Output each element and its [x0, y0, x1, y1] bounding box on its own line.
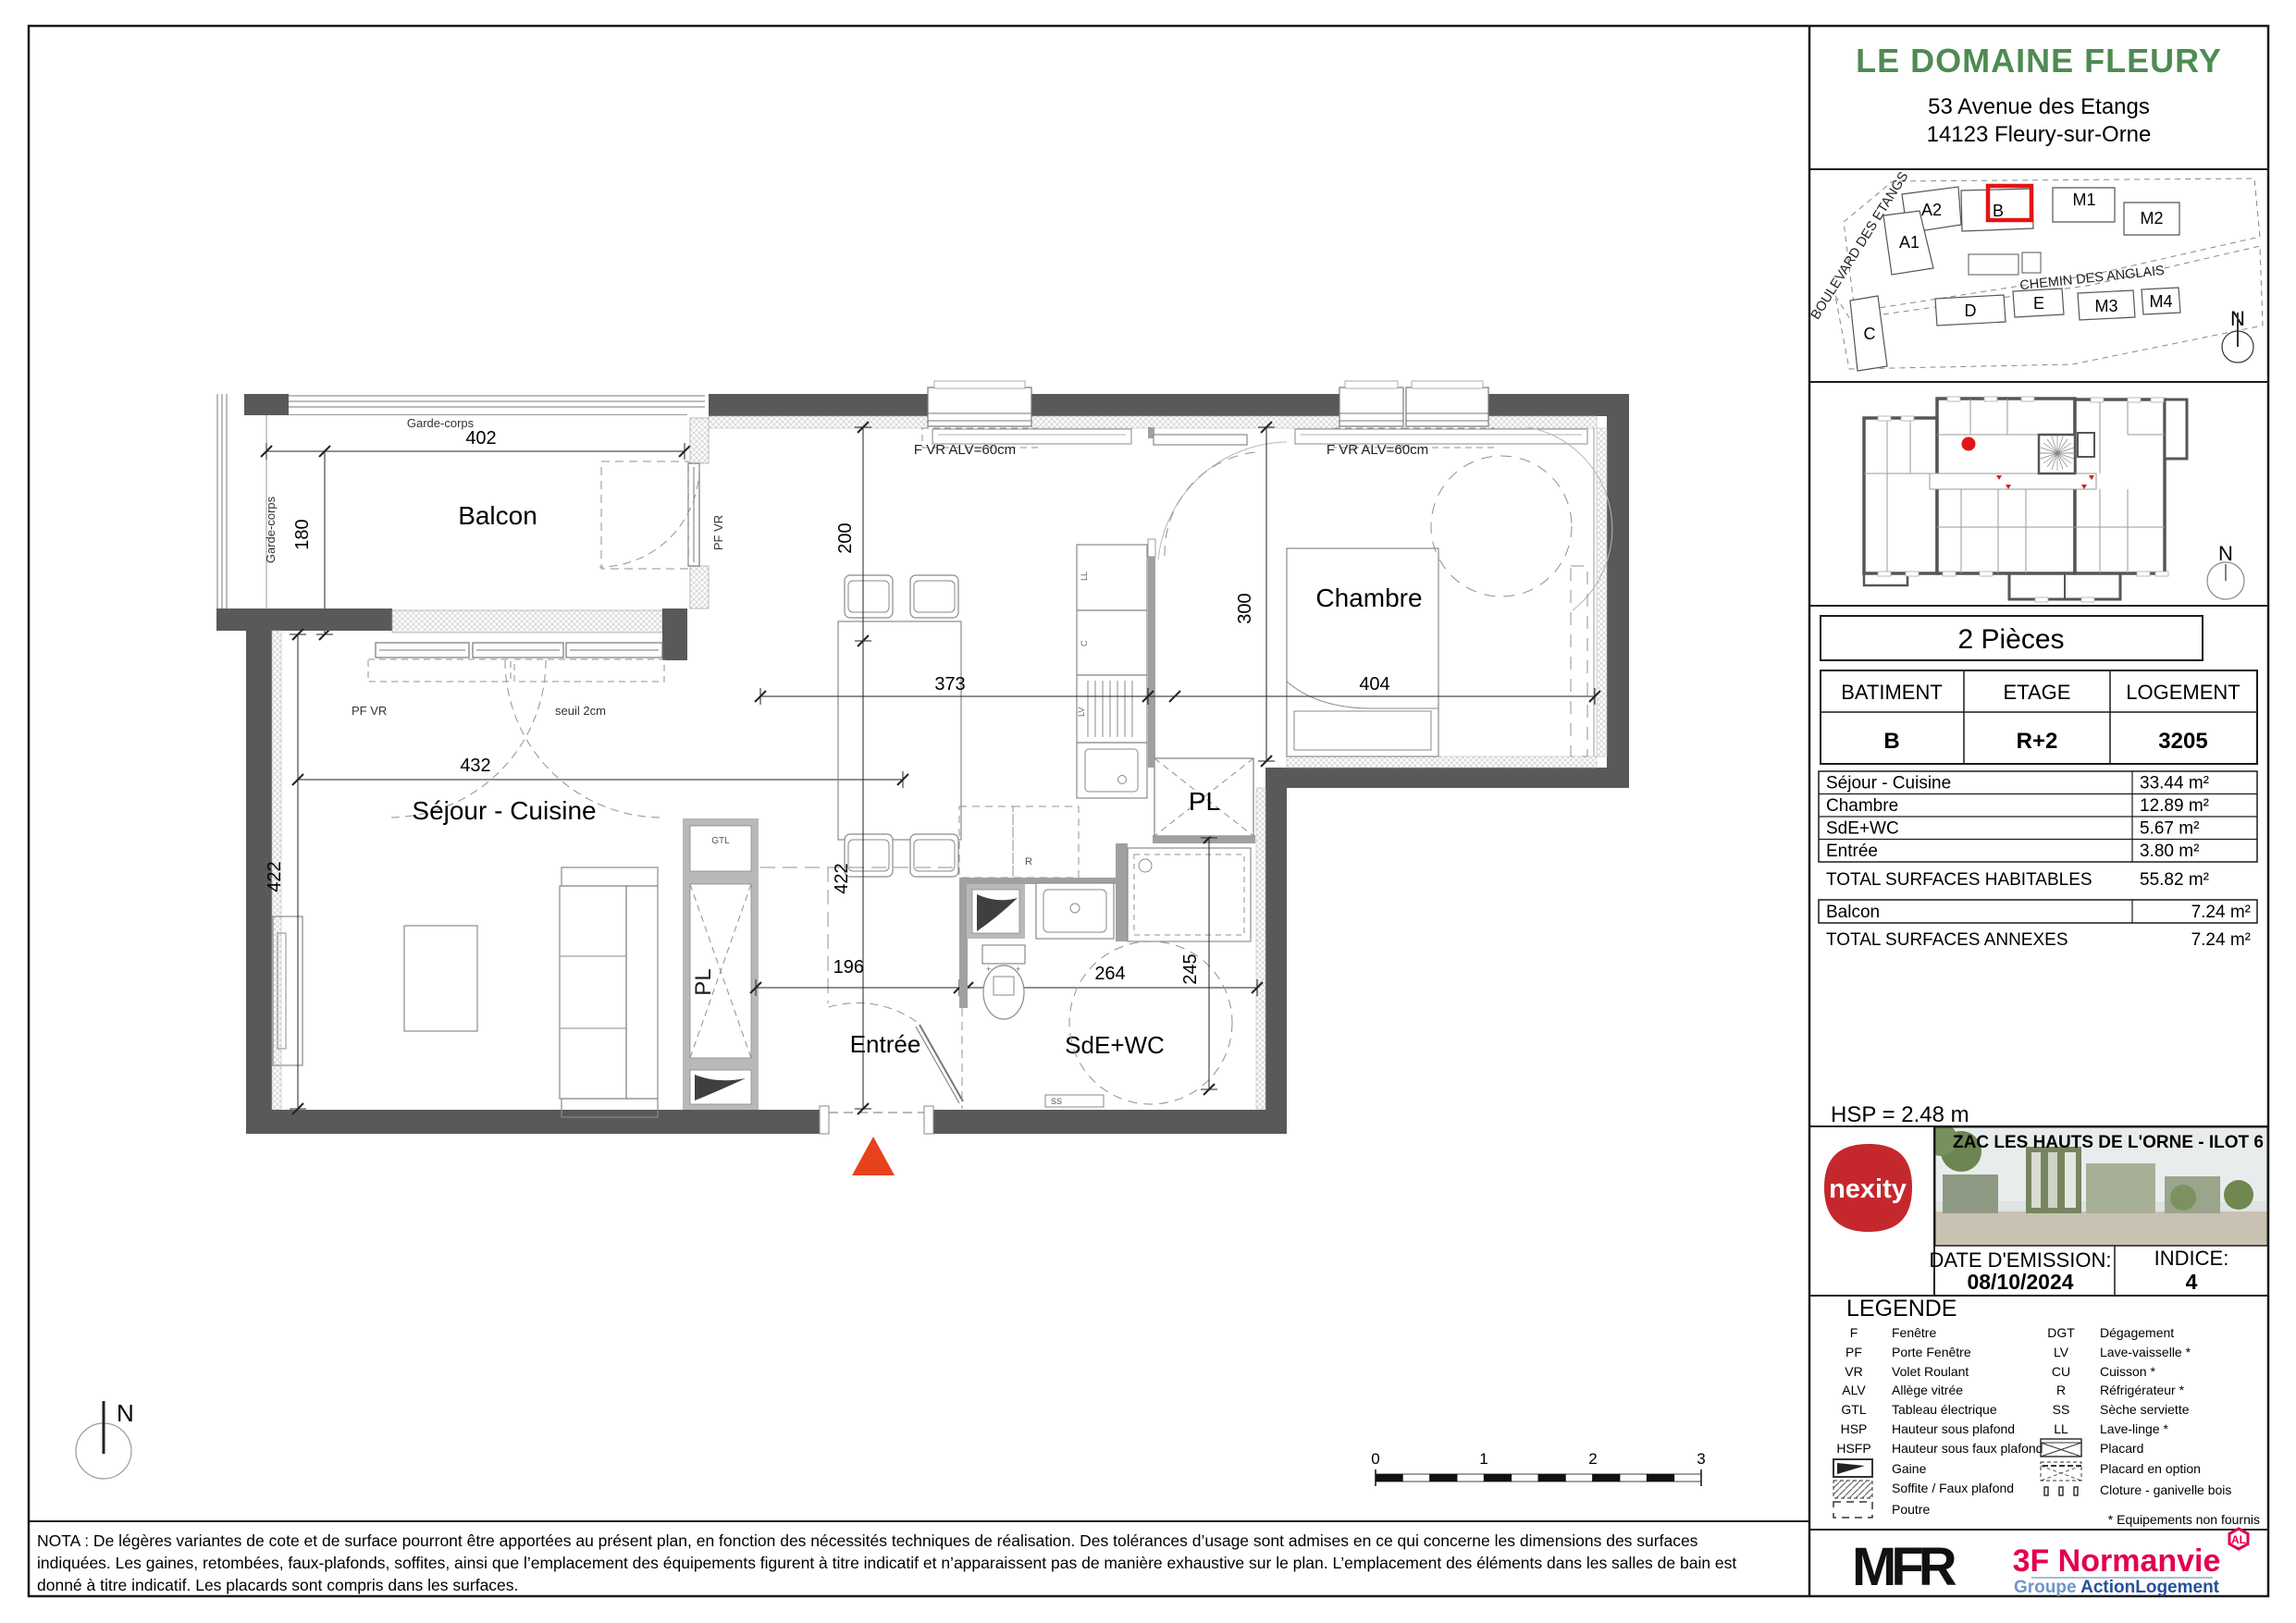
svg-text:* Equipements non fournis: * Equipements non fournis [2108, 1512, 2260, 1527]
svg-text:7.24 m²: 7.24 m² [2191, 903, 2251, 922]
svg-text:402: 402 [465, 428, 496, 449]
svg-text:TOTAL SURFACES HABITABLES: TOTAL SURFACES HABITABLES [1826, 870, 2092, 890]
svg-text:Hauteur sous faux plafond: Hauteur sous faux plafond [1892, 1441, 2043, 1456]
svg-text:HSP = 2.48 m: HSP = 2.48 m [1831, 1102, 1969, 1127]
svg-text:Balcon: Balcon [1826, 903, 1880, 922]
svg-text:DATE D'EMISSION:: DATE D'EMISSION: [1930, 1248, 2112, 1272]
svg-text:LV: LV [2054, 1345, 2069, 1359]
svg-text:Poutre: Poutre [1892, 1502, 1930, 1517]
svg-text:7.24 m²: 7.24 m² [2191, 930, 2251, 950]
svg-text:Sèche serviette: Sèche serviette [2100, 1402, 2190, 1417]
svg-text:F: F [1850, 1325, 1858, 1340]
svg-text:245: 245 [1180, 953, 1201, 984]
svg-text:Cuisson *: Cuisson * [2100, 1364, 2155, 1379]
svg-text:373: 373 [934, 674, 965, 695]
svg-text:Chambre: Chambre [1826, 796, 1898, 816]
svg-text:N: N [2218, 542, 2233, 565]
svg-text:PF VR: PF VR [711, 515, 725, 550]
svg-text:R+2: R+2 [2017, 729, 2058, 754]
svg-text:2 Pièces: 2 Pièces [1957, 624, 2064, 655]
svg-text:Entrée: Entrée [850, 1030, 921, 1058]
svg-text:INDICE:: INDICE: [2154, 1247, 2229, 1270]
svg-text:SdE+WC: SdE+WC [1065, 1031, 1165, 1059]
svg-text:nexity: nexity [1829, 1174, 1907, 1204]
svg-text:LL: LL [2054, 1421, 2068, 1436]
svg-text:LEGENDE: LEGENDE [1846, 1296, 1957, 1322]
svg-text:C: C [1864, 325, 1876, 343]
svg-text:M4: M4 [2149, 292, 2172, 311]
svg-text:Placard: Placard [2100, 1441, 2143, 1456]
svg-text:HSFP: HSFP [1836, 1441, 1870, 1456]
svg-text:3F Normanvie: 3F Normanvie [2013, 1543, 2221, 1579]
svg-text:3205: 3205 [2158, 729, 2207, 754]
svg-text:Lave-vaisselle *: Lave-vaisselle * [2100, 1345, 2191, 1359]
svg-text:+: + [986, 965, 991, 974]
svg-text:VR: VR [1845, 1364, 1862, 1379]
svg-text:R: R [2056, 1383, 2066, 1397]
svg-text:LV: LV [1077, 707, 1086, 717]
svg-text:E: E [2033, 294, 2044, 313]
svg-text:M1: M1 [2072, 191, 2095, 209]
svg-text:PF: PF [1845, 1345, 1862, 1359]
svg-text:HSP: HSP [1841, 1421, 1868, 1436]
svg-text:+: + [1016, 965, 1020, 974]
svg-text:TOTAL SURFACES ANNEXES: TOTAL SURFACES ANNEXES [1826, 930, 2068, 950]
svg-text:3: 3 [1697, 1450, 1705, 1468]
svg-text:donné à titre indicatif. Les p: donné à titre indicatif. Les placards so… [37, 1576, 518, 1594]
svg-text:Séjour - Cuisine: Séjour - Cuisine [1826, 774, 1951, 793]
svg-text:NOTA : De légères variantes de: NOTA : De légères variantes de cote et d… [37, 1531, 1698, 1550]
svg-text:PL: PL [1189, 787, 1220, 816]
svg-text:M3: M3 [2094, 297, 2117, 315]
svg-text:264: 264 [1094, 964, 1125, 984]
svg-text:196: 196 [833, 957, 864, 977]
svg-text:1: 1 [1479, 1450, 1487, 1468]
svg-text:4: 4 [2186, 1270, 2198, 1294]
svg-text:Chambre: Chambre [1315, 584, 1422, 612]
svg-text:08/10/2024: 08/10/2024 [1967, 1270, 2073, 1294]
svg-text:F VR ALV=60cm: F VR ALV=60cm [914, 442, 1016, 458]
svg-text:300: 300 [1235, 593, 1255, 623]
svg-text:ETAGE: ETAGE [2004, 681, 2071, 704]
svg-text:Séjour - Cuisine: Séjour - Cuisine [412, 796, 596, 825]
svg-text:180: 180 [292, 519, 313, 549]
svg-text:F VR ALV=60cm: F VR ALV=60cm [1327, 442, 1428, 458]
svg-text:BATIMENT: BATIMENT [1841, 681, 1943, 704]
svg-text:200: 200 [835, 523, 856, 553]
svg-text:LOGEMENT: LOGEMENT [2126, 681, 2240, 704]
svg-text:Porte Fenêtre: Porte Fenêtre [1892, 1345, 1971, 1359]
svg-text:DGT: DGT [2047, 1325, 2075, 1340]
svg-text:SS: SS [1051, 1097, 1062, 1106]
svg-text:seuil 2cm: seuil 2cm [555, 704, 606, 718]
svg-text:Dégagement: Dégagement [2100, 1325, 2174, 1340]
svg-text:Soffite / Faux plafond: Soffite / Faux plafond [1892, 1481, 2014, 1495]
svg-text:404: 404 [1359, 674, 1389, 695]
svg-text:3.80 m²: 3.80 m² [2140, 842, 2199, 861]
svg-text:53 Avenue des Etangs: 53 Avenue des Etangs [1928, 94, 2150, 119]
svg-text:Garde-corps: Garde-corps [407, 416, 475, 430]
svg-text:Placard en option: Placard en option [2100, 1461, 2201, 1476]
svg-text:B: B [1993, 202, 2004, 220]
svg-text:5.67 m²: 5.67 m² [2140, 819, 2199, 839]
svg-text:MFR: MFR [1852, 1537, 1957, 1597]
svg-text:indiquées. Les gaines, retombé: indiquées. Les gaines, retombées, faux-p… [37, 1554, 1736, 1572]
svg-text:R: R [1025, 856, 1032, 867]
svg-text:GTL: GTL [1841, 1402, 1866, 1417]
svg-text:PL: PL [691, 968, 716, 995]
svg-text:14123 Fleury-sur-Orne: 14123 Fleury-sur-Orne [1927, 122, 2152, 147]
svg-text:AL: AL [2231, 1533, 2246, 1546]
svg-text:N: N [117, 1399, 134, 1427]
svg-text:M2: M2 [2140, 209, 2163, 227]
svg-text:422: 422 [265, 861, 285, 891]
svg-text:D: D [1965, 301, 1977, 320]
svg-text:Garde-corps: Garde-corps [264, 496, 278, 563]
svg-text:Réfrigérateur *: Réfrigérateur * [2100, 1383, 2185, 1397]
svg-text:Entrée: Entrée [1826, 842, 1878, 861]
svg-text:C: C [1080, 640, 1089, 646]
svg-text:PF VR: PF VR [352, 704, 387, 718]
svg-text:422: 422 [832, 863, 852, 893]
svg-text:Groupe ActionLogement: Groupe ActionLogement [2014, 1578, 2220, 1597]
svg-text:2: 2 [1588, 1450, 1597, 1468]
svg-text:Gaine: Gaine [1892, 1461, 1927, 1476]
svg-text:432: 432 [460, 756, 490, 776]
svg-text:CU: CU [2052, 1364, 2070, 1379]
svg-text:LE DOMAINE FLEURY: LE DOMAINE FLEURY [1856, 42, 2222, 80]
svg-text:Fenêtre: Fenêtre [1892, 1325, 1936, 1340]
svg-text:Allège vitrée: Allège vitrée [1892, 1383, 1963, 1397]
svg-text:ALV: ALV [1842, 1383, 1866, 1397]
svg-text:A1: A1 [1899, 233, 1920, 252]
svg-text:GTL: GTL [711, 836, 730, 846]
svg-text:SS: SS [2053, 1402, 2070, 1417]
svg-text:Lave-linge *: Lave-linge * [2100, 1421, 2168, 1436]
svg-text:Volet Roulant: Volet Roulant [1892, 1364, 1969, 1379]
svg-text:SdE+WC: SdE+WC [1826, 819, 1899, 839]
svg-text:Cloture - ganivelle bois: Cloture - ganivelle bois [2100, 1482, 2231, 1497]
svg-text:55.82 m²: 55.82 m² [2140, 870, 2209, 890]
svg-text:Hauteur sous plafond: Hauteur sous plafond [1892, 1421, 2015, 1436]
svg-text:B: B [1883, 729, 1899, 754]
svg-text:12.89 m²: 12.89 m² [2140, 796, 2209, 816]
svg-text:ZAC LES HAUTS DE L'ORNE - ILOT: ZAC LES HAUTS DE L'ORNE - ILOT 6 [1953, 1133, 2264, 1152]
svg-text:0: 0 [1371, 1450, 1379, 1468]
svg-text:A2: A2 [1921, 201, 1942, 219]
svg-text:33.44 m²: 33.44 m² [2140, 774, 2209, 793]
svg-text:Balcon: Balcon [458, 501, 537, 530]
svg-text:Tableau électrique: Tableau électrique [1892, 1402, 1997, 1417]
svg-text:LL: LL [1080, 572, 1089, 581]
